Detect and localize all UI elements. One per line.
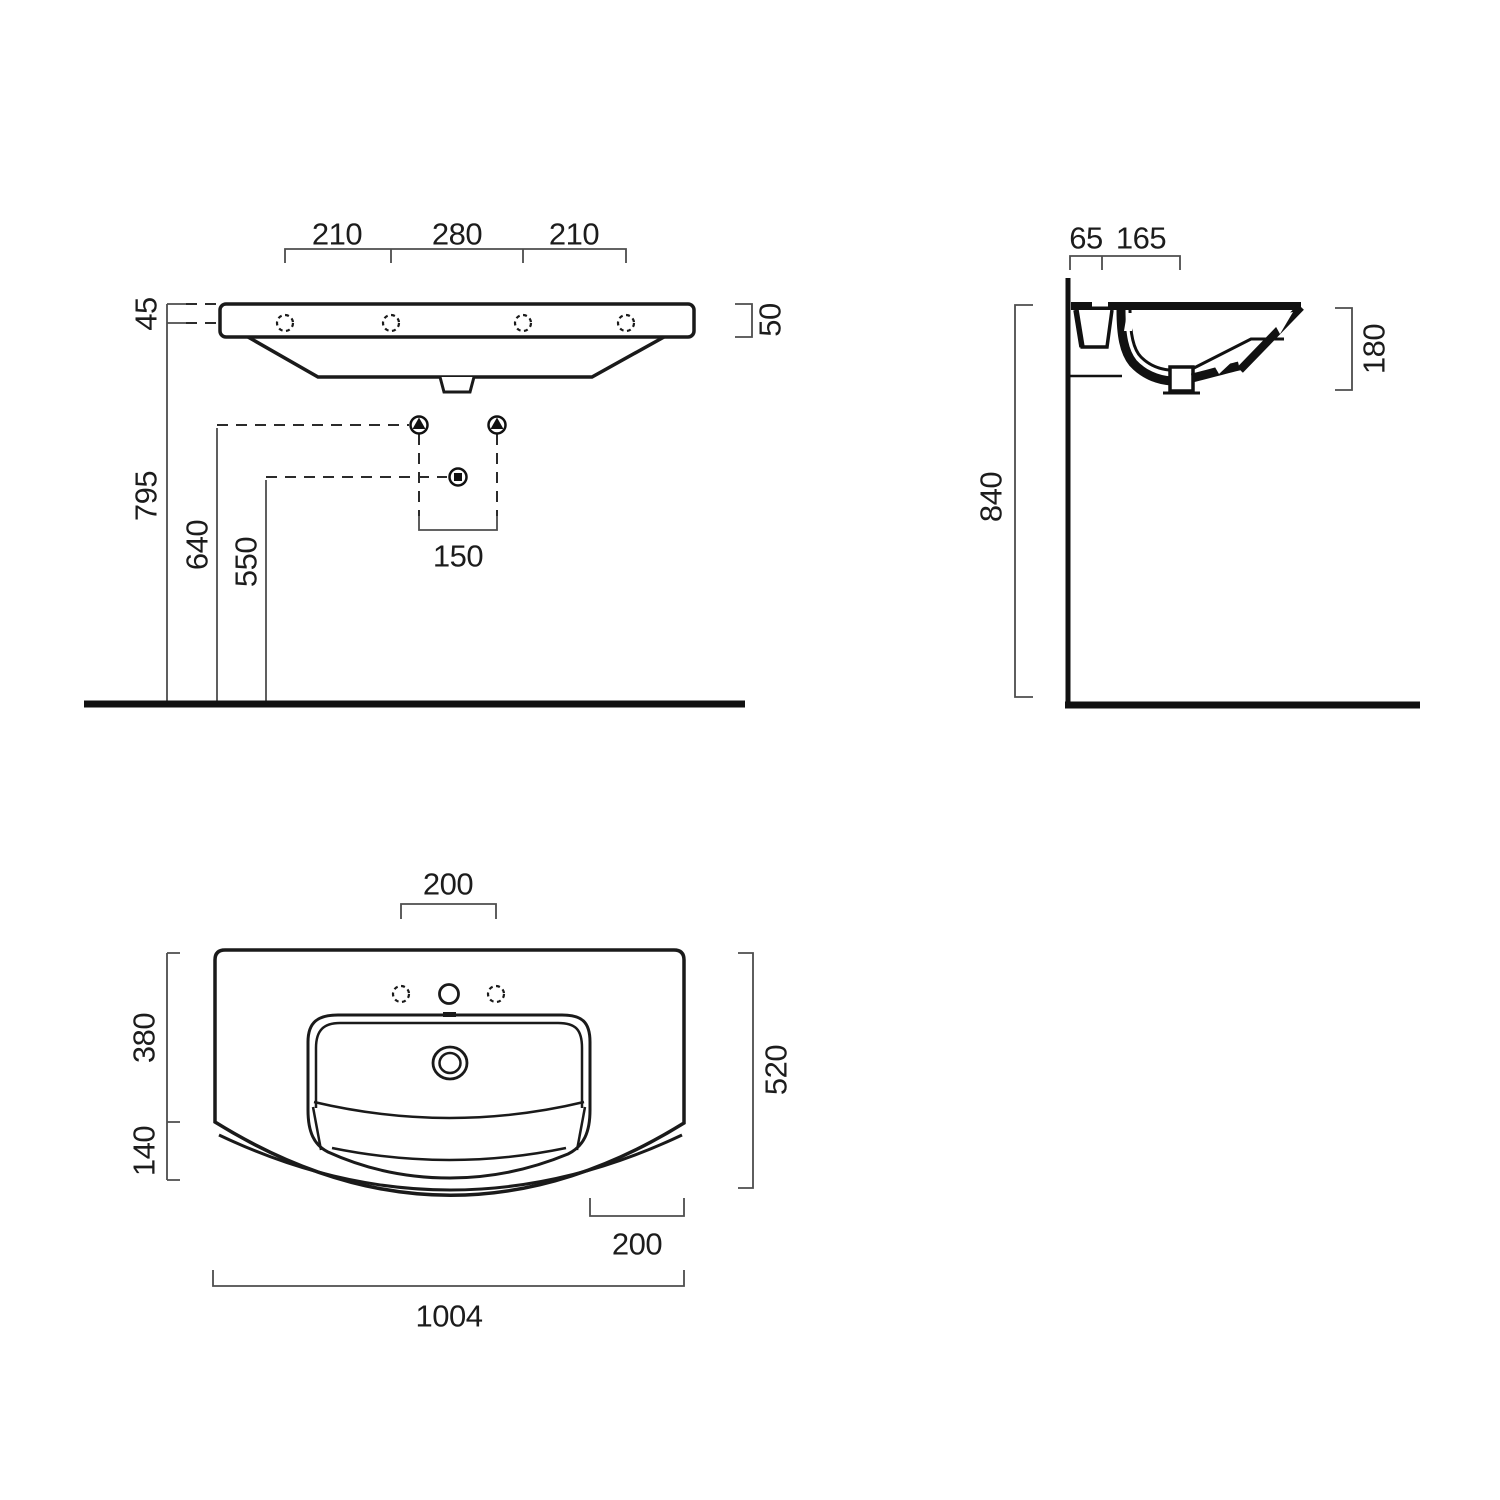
front-basin-outline [220,304,694,392]
side-view: 65 165 180 840 [974,221,1421,708]
basin-body-outline [248,337,664,377]
inner-basin-outline [308,1015,590,1178]
front-dim-50: 50 [753,303,788,337]
drain-stub-outline [440,377,474,392]
basin-side-profile [1070,302,1301,393]
drain-connection-icon [450,469,467,486]
side-dim-180: 180 [1357,324,1392,374]
plan-view: 200 380 140 520 200 1004 [127,867,794,1334]
plan-dim-140: 140 [127,1126,162,1176]
front-dim-45: 45 [129,297,164,330]
plan-520-bracket [738,953,753,1188]
front-dim-210-left: 210 [312,217,362,252]
front-view: 210 280 210 45 50 795 640 550 150 [84,217,788,705]
plan-dim-200-top: 200 [423,867,473,902]
plan-outline-group [215,950,684,1195]
side-dim-165: 165 [1116,221,1166,256]
plan-top-200-bracket [401,904,496,919]
technical-drawing-page: 210 280 210 45 50 795 640 550 150 [0,0,1500,1500]
supply-valve-right-icon [489,417,506,434]
washbasin-dimension-drawing: 210 280 210 45 50 795 640 550 150 [0,0,1500,1500]
front-50-dim-bracket [735,304,752,337]
supply-valve-left-icon [411,417,428,434]
overflow-notch [443,1012,456,1017]
front-45-dim-ticks [167,304,186,323]
side-top-dim-bracket [1070,256,1180,270]
front-dim-210-right: 210 [549,217,599,252]
rim-front-outline [220,304,694,337]
front-dim-labels: 210 280 210 45 50 795 640 550 150 [129,217,788,588]
profile-top-notch [1092,302,1108,307]
plan-dim-380: 380 [127,1013,162,1063]
side-840-dim-bracket [1015,305,1033,697]
front-dim-640: 640 [180,520,215,570]
plan-bottom-200-bracket [590,1198,684,1216]
plan-dim-1004: 1004 [416,1299,483,1334]
front-150-dim-bracket [419,516,497,530]
plan-1004-bracket [213,1270,684,1286]
drain-box [1170,367,1193,391]
side-dim-840: 840 [974,472,1009,522]
plan-dim-520: 520 [759,1045,794,1095]
front-dim-150: 150 [433,539,483,574]
side-180-dim-bracket [1335,308,1352,390]
front-dim-550: 550 [229,537,264,587]
front-dim-795: 795 [129,471,164,521]
side-dim-65: 65 [1069,221,1102,256]
plan-left-dim-line [167,953,180,1180]
front-dim-280: 280 [432,217,482,252]
overflow-slot-cutout [1124,313,1135,331]
plumbing-symbols [411,417,506,486]
plan-dim-200-bottom: 200 [612,1227,662,1262]
